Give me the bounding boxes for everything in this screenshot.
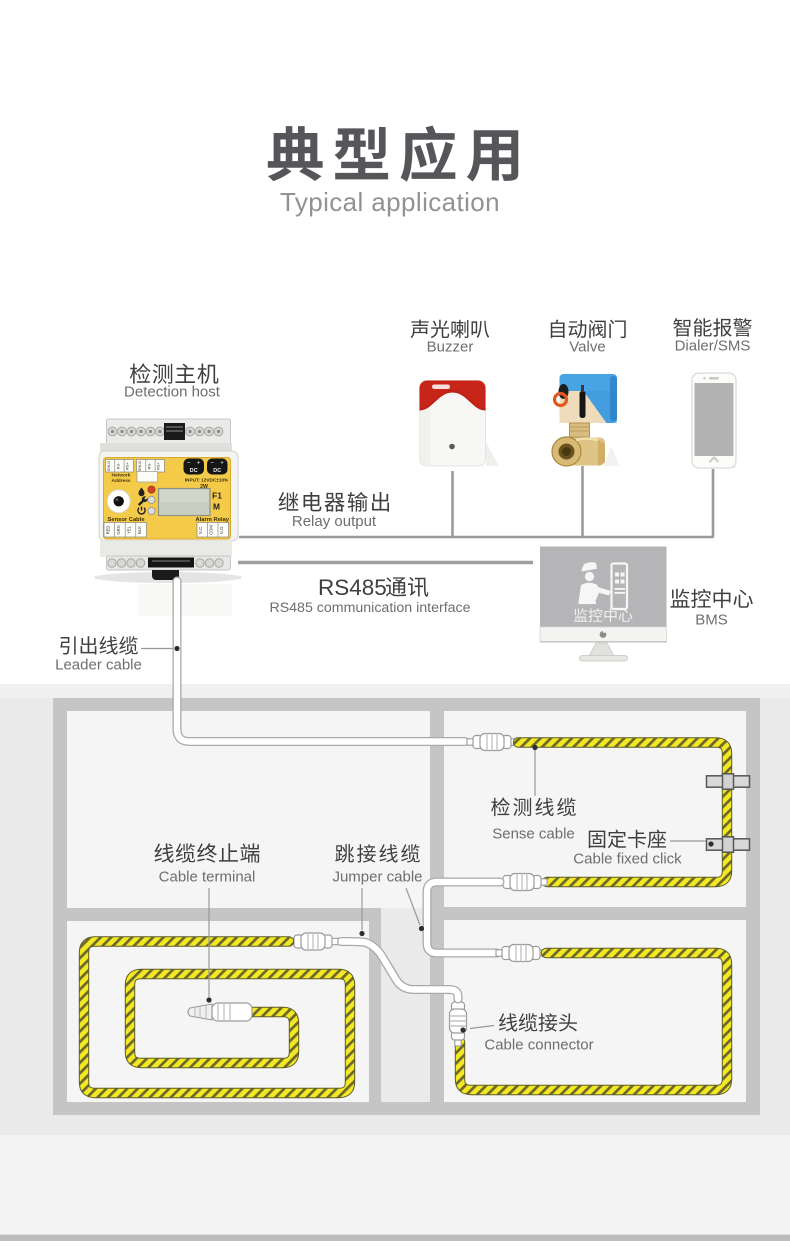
svg-text:Cable fixed click: Cable fixed click (573, 851, 682, 868)
svg-text:N.C.: N.C. (198, 526, 203, 534)
svg-text:RS485 communication interface: RS485 communication interface (269, 600, 470, 616)
svg-text:Typical application: Typical application (280, 187, 500, 217)
svg-text:DC: DC (213, 468, 221, 474)
svg-text:SHLD: SHLD (106, 461, 111, 472)
svg-text:RS+: RS+ (125, 461, 130, 470)
svg-text:M: M (213, 502, 220, 512)
svg-text:RED: RED (105, 526, 110, 535)
svg-text:N.O.: N.O. (219, 526, 224, 535)
svg-text:Address: Address (111, 478, 131, 484)
svg-text:BMS: BMS (695, 612, 728, 629)
svg-text:Buzzer: Buzzer (427, 339, 474, 356)
svg-text:DC: DC (190, 468, 198, 474)
svg-text:Jumper cable: Jumper cable (332, 869, 422, 886)
svg-text:Leader cable: Leader cable (55, 657, 142, 674)
svg-text:+: + (220, 461, 224, 467)
svg-text:Sensor Cable: Sensor Cable (108, 517, 146, 523)
svg-text:Sense cable: Sense cable (492, 826, 575, 843)
svg-text:RS-: RS- (146, 462, 151, 470)
svg-text:RS+: RS+ (156, 461, 161, 470)
svg-text:RS485: RS485 (318, 575, 387, 600)
svg-text:Cable connector: Cable connector (484, 1037, 593, 1054)
svg-text:SHLD: SHLD (137, 461, 142, 472)
svg-text:Alarm Relay: Alarm Relay (195, 517, 229, 523)
svg-text:F1: F1 (212, 491, 222, 501)
svg-text:Relay output: Relay output (292, 513, 377, 530)
svg-text:Network: Network (112, 473, 131, 479)
svg-text:+: + (197, 461, 201, 467)
svg-text:−: − (187, 461, 191, 467)
svg-text:Cable terminal: Cable terminal (159, 869, 256, 886)
svg-text:COM: COM (209, 525, 214, 535)
svg-text:Detection host: Detection host (124, 384, 221, 401)
svg-text:YEL: YEL (127, 525, 132, 534)
svg-text:GRN: GRN (116, 525, 121, 534)
svg-text:INPUT: 12VDC±10%: INPUT: 12VDC±10% (185, 478, 229, 483)
svg-text:Valve: Valve (569, 339, 605, 356)
svg-text:RS-: RS- (115, 462, 120, 470)
svg-text:−: − (210, 461, 214, 467)
svg-text:BLK: BLK (137, 526, 142, 534)
svg-text:Dialer/SMS: Dialer/SMS (675, 338, 751, 355)
